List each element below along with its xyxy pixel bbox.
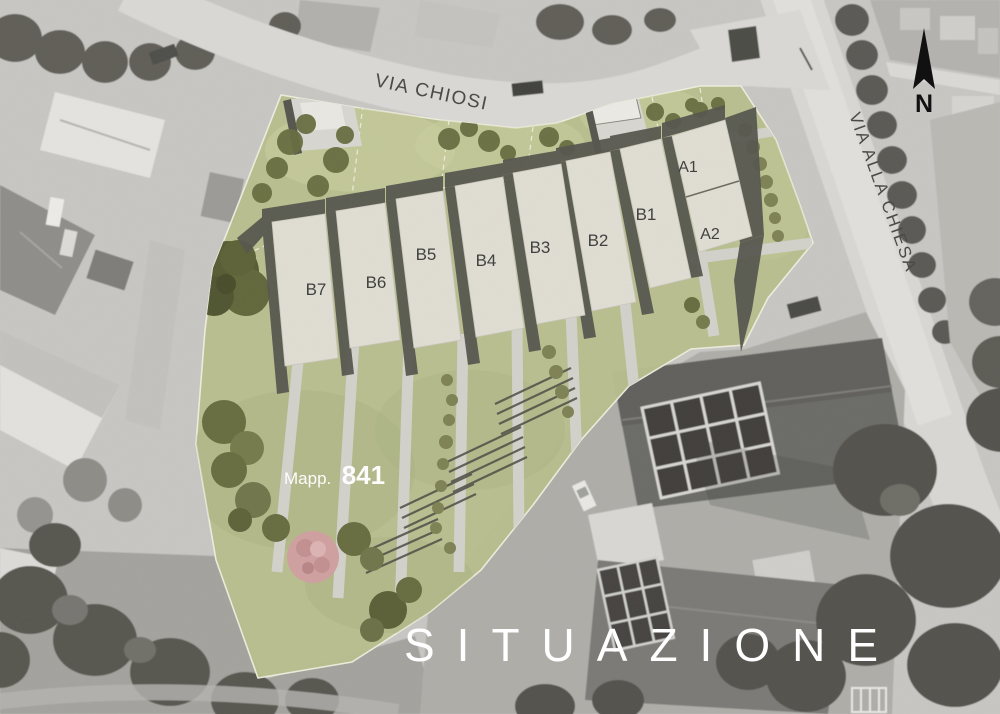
photo-grain (0, 0, 1000, 714)
north-label: N (915, 90, 933, 118)
page-title: SITUAZIONE (404, 619, 900, 671)
site-plan-image: B7 B6 B5 B4 B3 B2 B1 A1 A2 Mapp. 841 VIA… (0, 0, 1000, 714)
